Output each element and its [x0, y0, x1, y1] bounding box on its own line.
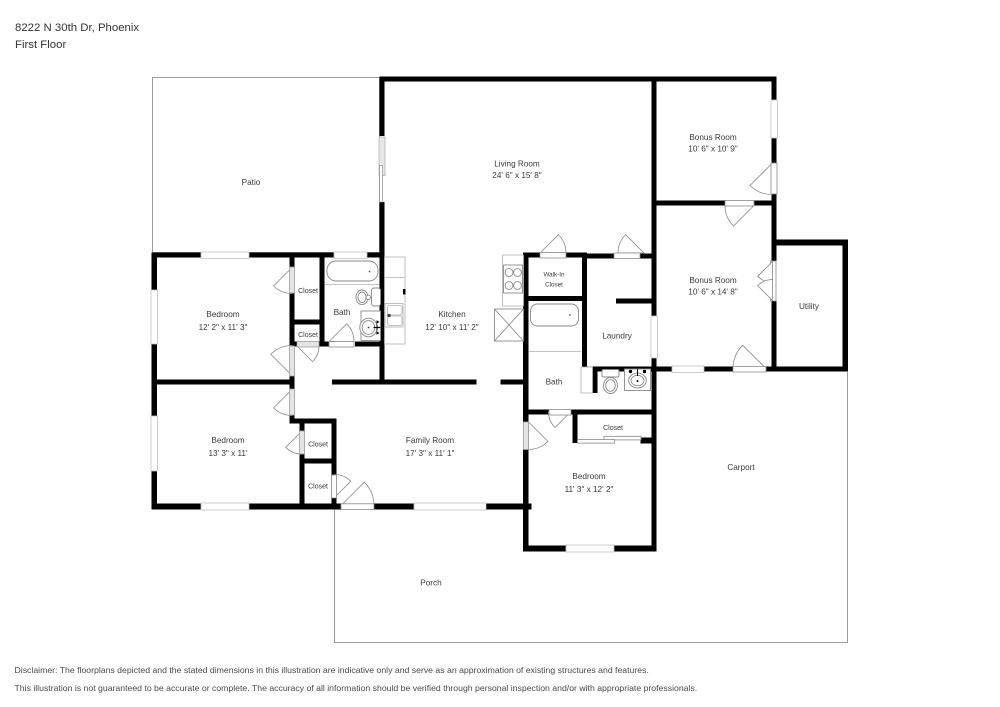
- svg-text:12' 2" x 11' 3": 12' 2" x 11' 3": [199, 323, 248, 332]
- svg-text:17' 3" x 11' 1": 17' 3" x 11' 1": [406, 449, 455, 458]
- svg-text:Closet: Closet: [298, 288, 318, 295]
- svg-text:10' 6" x 10' 9": 10' 6" x 10' 9": [688, 145, 738, 154]
- svg-text:12' 10" x 11' 2": 12' 10" x 11' 2": [425, 323, 478, 332]
- svg-text:13' 3" x 11': 13' 3" x 11': [208, 449, 248, 458]
- svg-text:Closet: Closet: [298, 332, 318, 339]
- svg-text:This illustration is not guara: This illustration is not guaranteed to b…: [15, 683, 698, 693]
- svg-text:Closet: Closet: [545, 282, 563, 289]
- svg-text:Laundry: Laundry: [602, 332, 632, 341]
- svg-text:Closet: Closet: [603, 425, 623, 432]
- svg-text:Walk-In: Walk-In: [543, 272, 565, 279]
- svg-text:Closet: Closet: [308, 484, 328, 491]
- svg-text:Family Room: Family Room: [406, 436, 454, 445]
- svg-text:Patio: Patio: [242, 178, 261, 187]
- svg-text:Bedroom: Bedroom: [572, 472, 605, 481]
- svg-text:Bedroom: Bedroom: [211, 436, 244, 445]
- svg-text:Closet: Closet: [308, 442, 328, 449]
- svg-text:Utility: Utility: [799, 302, 820, 311]
- svg-text:Porch: Porch: [420, 579, 442, 588]
- svg-text:24' 6" x 15' 8": 24' 6" x 15' 8": [492, 171, 542, 180]
- svg-text:Living Room: Living Room: [494, 160, 540, 169]
- svg-text:Bedroom: Bedroom: [206, 310, 239, 319]
- svg-text:Bonus Room: Bonus Room: [689, 133, 737, 142]
- svg-text:Kitchen: Kitchen: [438, 310, 466, 319]
- svg-text:Bath: Bath: [334, 308, 351, 317]
- svg-text:Bonus Room: Bonus Room: [689, 276, 737, 285]
- svg-text:8222 N 30th Dr, Phoenix: 8222 N 30th Dr, Phoenix: [15, 22, 139, 34]
- svg-text:Disclaimer: The floorplans dep: Disclaimer: The floorplans depicted and …: [15, 665, 649, 675]
- svg-text:10' 6" x 14' 8": 10' 6" x 14' 8": [688, 288, 738, 297]
- svg-text:Bath: Bath: [546, 378, 563, 387]
- svg-text:Carport: Carport: [727, 463, 755, 472]
- svg-text:11' 3" x 12' 2": 11' 3" x 12' 2": [565, 485, 614, 494]
- svg-text:First Floor: First Floor: [15, 39, 66, 51]
